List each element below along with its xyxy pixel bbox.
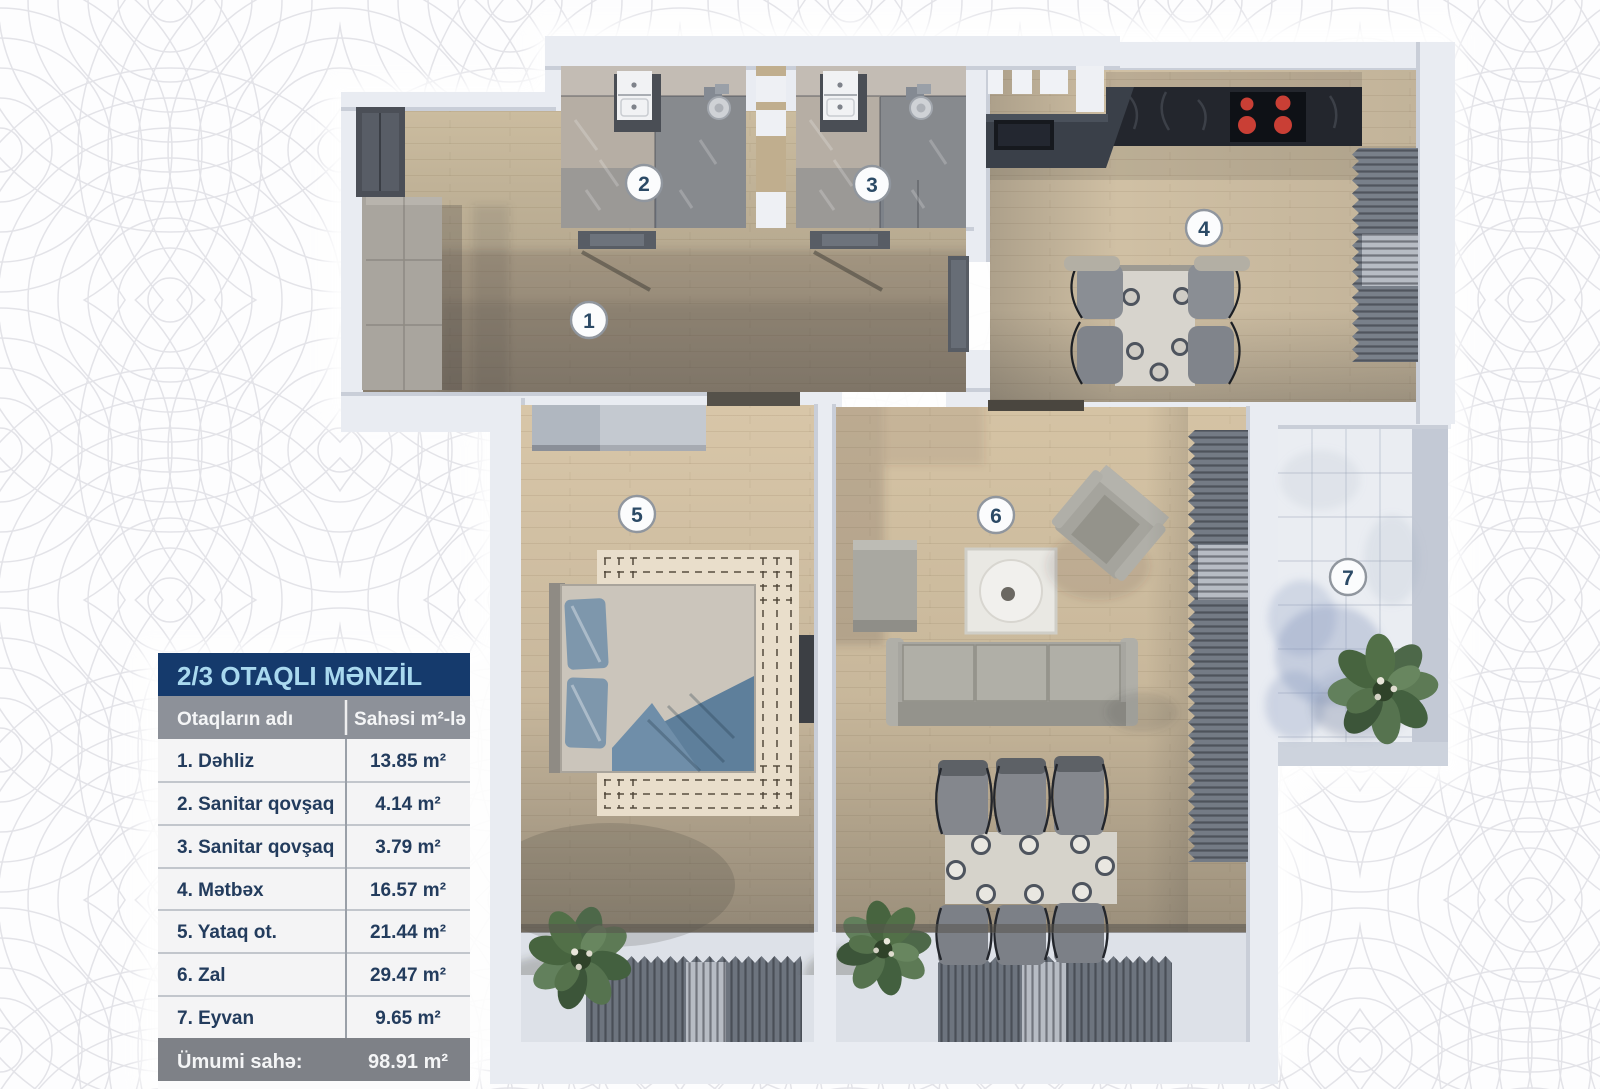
svg-text:7. Eyvan: 7. Eyvan xyxy=(177,1008,254,1029)
svg-text:5. Yataq ot.: 5. Yataq ot. xyxy=(177,922,277,943)
svg-text:3: 3 xyxy=(866,174,878,197)
svg-text:Otaqların adı: Otaqların adı xyxy=(177,709,293,730)
svg-text:3.79 m²: 3.79 m² xyxy=(375,837,440,858)
svg-text:21.44 m²: 21.44 m² xyxy=(370,922,446,943)
svg-text:4: 4 xyxy=(1198,218,1210,241)
svg-text:13.85 m²: 13.85 m² xyxy=(370,751,446,772)
svg-text:5: 5 xyxy=(631,504,643,527)
svg-text:2/3 OTAQLI MƏNZİL: 2/3 OTAQLI MƏNZİL xyxy=(177,661,422,691)
svg-text:6: 6 xyxy=(990,505,1002,528)
svg-text:3. Sanitar qovşaq: 3. Sanitar qovşaq xyxy=(177,837,334,858)
svg-text:2: 2 xyxy=(638,173,650,196)
svg-text:1. Dəhliz: 1. Dəhliz xyxy=(177,751,254,772)
svg-text:4.14 m²: 4.14 m² xyxy=(375,794,440,815)
svg-text:2. Sanitar qovşaq: 2. Sanitar qovşaq xyxy=(177,794,334,815)
svg-text:7: 7 xyxy=(1342,567,1354,590)
svg-text:98.91 m²: 98.91 m² xyxy=(368,1051,448,1073)
svg-text:6. Zal: 6. Zal xyxy=(177,965,226,986)
svg-text:9.65 m²: 9.65 m² xyxy=(375,1008,440,1029)
svg-text:Sahəsi m²-lə: Sahəsi m²-lə xyxy=(354,709,466,730)
svg-text:Ümumi sahə:: Ümumi sahə: xyxy=(177,1050,303,1073)
svg-text:29.47 m²: 29.47 m² xyxy=(370,965,446,986)
svg-text:1: 1 xyxy=(583,310,595,333)
svg-text:4. Mətbəx: 4. Mətbəx xyxy=(177,880,264,901)
svg-text:16.57 m²: 16.57 m² xyxy=(370,880,446,901)
